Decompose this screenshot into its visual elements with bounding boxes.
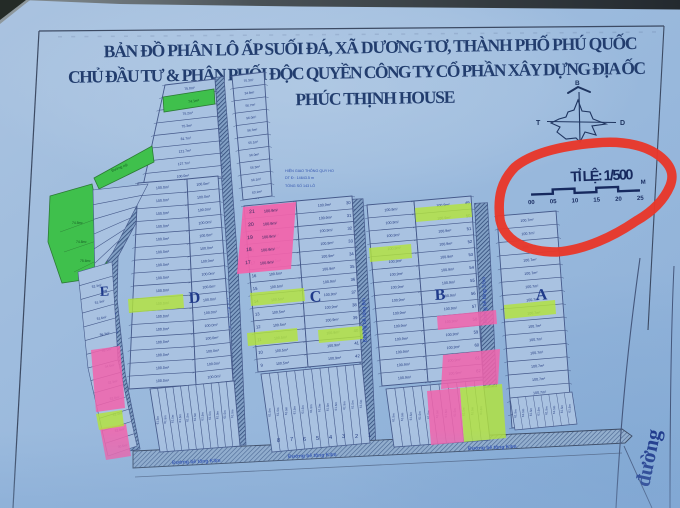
- svg-text:61.5m: 61.5m: [326, 402, 330, 411]
- svg-text:61.5m: 61.5m: [156, 415, 160, 424]
- svg-text:61.5m: 61.5m: [208, 411, 212, 420]
- svg-text:61.5m: 61.5m: [267, 408, 271, 417]
- svg-text:100.0m²: 100.0m²: [156, 378, 170, 383]
- svg-text:B: B: [575, 80, 580, 87]
- svg-text:61.5m: 61.5m: [529, 407, 533, 416]
- svg-text:61.5m: 61.5m: [163, 415, 167, 424]
- svg-text:D: D: [620, 120, 625, 127]
- svg-text:05: 05: [550, 199, 558, 205]
- svg-text:61.5m: 61.5m: [170, 414, 174, 423]
- svg-text:61.5m: 61.5m: [215, 410, 219, 419]
- svg-text:61.5m: 61.5m: [309, 404, 313, 413]
- svg-text:15: 15: [593, 197, 601, 203]
- svg-text:61.5m: 61.5m: [513, 409, 517, 418]
- svg-text:25: 25: [637, 196, 645, 202]
- svg-text:18: 18: [246, 247, 252, 253]
- svg-text:61.5m: 61.5m: [560, 404, 564, 413]
- svg-text:61.5m: 61.5m: [418, 411, 422, 420]
- svg-text:74.5m²: 74.5m²: [72, 221, 83, 225]
- svg-text:DT Đ : 14643.5 m: DT Đ : 14643.5 m: [285, 176, 314, 180]
- svg-text:61.5m: 61.5m: [230, 409, 234, 418]
- svg-text:61.5m: 61.5m: [185, 413, 189, 422]
- svg-text:61.5m: 61.5m: [400, 412, 404, 421]
- svg-text:61.5m: 61.5m: [178, 414, 182, 423]
- svg-text:61.5m: 61.5m: [200, 412, 204, 421]
- svg-text:61.5m: 61.5m: [350, 400, 354, 409]
- svg-text:100.0m²: 100.0m²: [156, 366, 170, 371]
- svg-text:61.5m: 61.5m: [334, 402, 338, 411]
- svg-text:20: 20: [248, 222, 254, 228]
- svg-text:C: C: [309, 288, 321, 306]
- svg-text:10: 10: [571, 198, 579, 204]
- svg-text:HIỆN GIAO THÔNG QUY HO: HIỆN GIAO THÔNG QUY HO: [285, 168, 334, 173]
- svg-text:61.5m: 61.5m: [342, 401, 346, 410]
- svg-text:61.5m: 61.5m: [301, 405, 305, 414]
- svg-text:61.5m: 61.5m: [276, 407, 280, 416]
- svg-text:17: 17: [245, 260, 251, 266]
- svg-text:00: 00: [528, 200, 536, 206]
- svg-text:61.5m: 61.5m: [359, 399, 363, 408]
- svg-text:A: A: [535, 286, 548, 304]
- svg-text:74.8m²: 74.8m²: [76, 240, 87, 244]
- svg-text:75.6m²: 75.6m²: [80, 259, 91, 263]
- svg-text:21: 21: [249, 209, 255, 215]
- svg-text:TỔNG SỐ 143 LÔ: TỔNG SỐ 143 LÔ: [285, 183, 315, 188]
- svg-text:61.5m: 61.5m: [536, 407, 540, 416]
- svg-text:61.5m: 61.5m: [391, 413, 395, 422]
- svg-text:61.5m: 61.5m: [292, 405, 296, 414]
- svg-text:61.5m: 61.5m: [521, 408, 525, 417]
- svg-text:61.5m: 61.5m: [567, 404, 571, 413]
- svg-text:61.5m: 61.5m: [223, 410, 227, 419]
- svg-text:M: M: [641, 180, 646, 186]
- svg-text:T: T: [536, 120, 541, 127]
- svg-text:61.5m: 61.5m: [193, 412, 197, 421]
- svg-text:61.5m: 61.5m: [544, 406, 548, 415]
- svg-text:B: B: [434, 286, 446, 304]
- svg-text:20: 20: [615, 197, 623, 203]
- svg-text:PHÚC THỊNH HOUSE: PHÚC THỊNH HOUSE: [295, 87, 455, 110]
- svg-text:19: 19: [247, 235, 253, 241]
- svg-text:61.5m: 61.5m: [552, 405, 556, 414]
- svg-text:61.5m: 61.5m: [317, 403, 321, 412]
- svg-text:61.5m: 61.5m: [284, 406, 288, 415]
- svg-text:61.5m: 61.5m: [409, 411, 413, 420]
- svg-text:E: E: [99, 285, 109, 300]
- svg-text:D: D: [188, 289, 200, 307]
